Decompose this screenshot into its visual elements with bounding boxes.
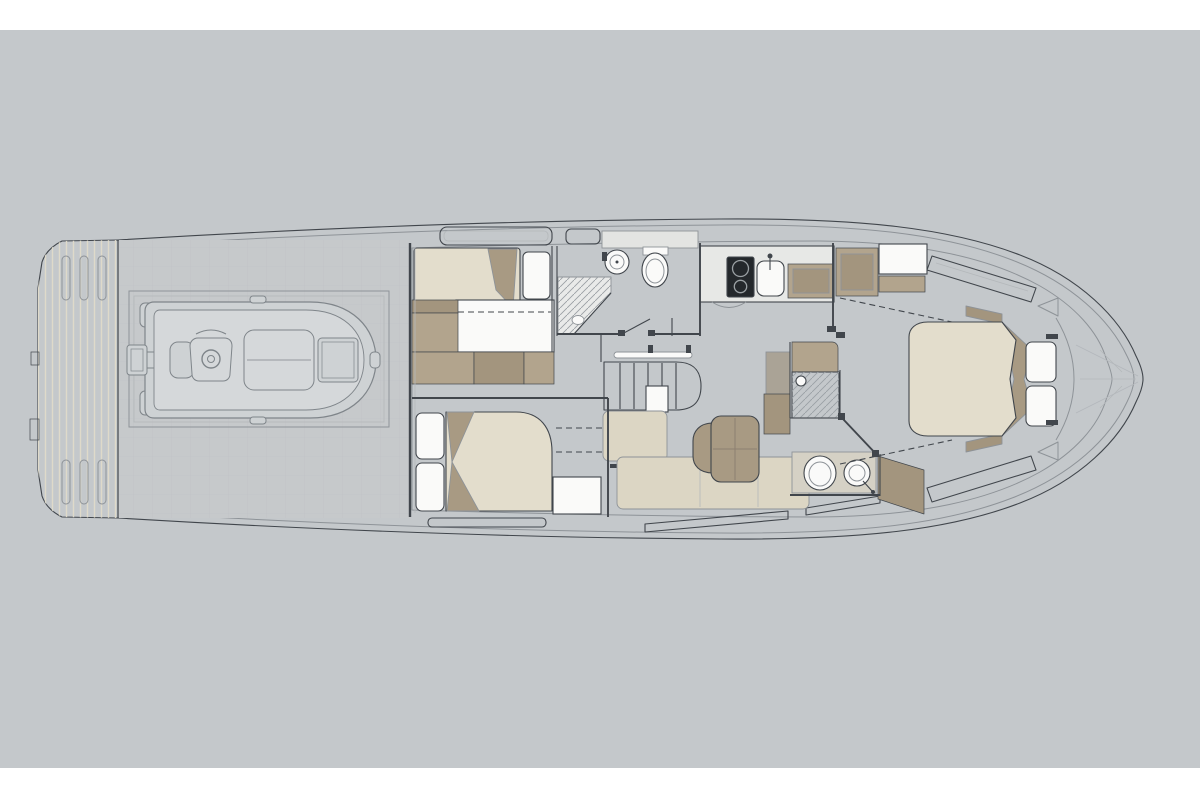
wardrobe-door <box>841 254 873 290</box>
bathroom-cabinet <box>764 394 790 434</box>
latch-fitting <box>1046 334 1058 339</box>
master-wardrobes <box>836 244 927 296</box>
vip-pillow <box>416 463 444 511</box>
twin-guest-cabin <box>412 248 554 384</box>
tender-aft-seat <box>318 338 358 382</box>
cabinet <box>879 244 927 274</box>
railing-post <box>686 345 691 353</box>
floor-plan-drawing <box>0 0 1200 800</box>
pullman-berth <box>456 300 554 352</box>
tender-cleat <box>250 296 266 303</box>
bedside-shelf <box>1026 342 1056 382</box>
latch-fitting <box>1046 420 1058 425</box>
faucet <box>602 252 607 261</box>
tender <box>127 296 380 424</box>
galley <box>700 246 834 308</box>
vip-pillow <box>416 413 444 459</box>
nightstand <box>523 252 550 299</box>
floor-plan-page <box>0 0 1200 800</box>
master-faucet-knob <box>871 490 875 494</box>
master-washbasin <box>844 460 870 486</box>
railing-post <box>648 345 653 353</box>
guest-cabin-cabinet <box>412 300 458 313</box>
vip-bench <box>553 477 601 514</box>
galley-cabinet-door <box>793 269 829 293</box>
sofa-corner <box>603 411 667 461</box>
washbasin-drain <box>616 261 619 264</box>
tender-bow-eye <box>370 352 380 368</box>
guest-cabin-wardrobe <box>474 352 524 384</box>
shower-drain <box>572 316 584 325</box>
vanity-cabinet <box>792 342 838 372</box>
pouf <box>693 423 713 473</box>
guest-cabin-wardrobe <box>412 352 474 384</box>
master-bed <box>909 322 1016 436</box>
tender-cleat <box>250 417 266 424</box>
overhead-cabinet-band <box>602 231 698 248</box>
tender-outboard-engine <box>127 345 147 375</box>
salon-locker <box>646 386 668 412</box>
shower-head <box>796 376 806 386</box>
tender-wheel-hub <box>208 356 215 363</box>
guest-cabin-wardrobe <box>524 352 554 384</box>
guest-cabin-wardrobe <box>412 313 458 352</box>
swim-platform <box>30 240 118 518</box>
shelf <box>879 276 925 292</box>
